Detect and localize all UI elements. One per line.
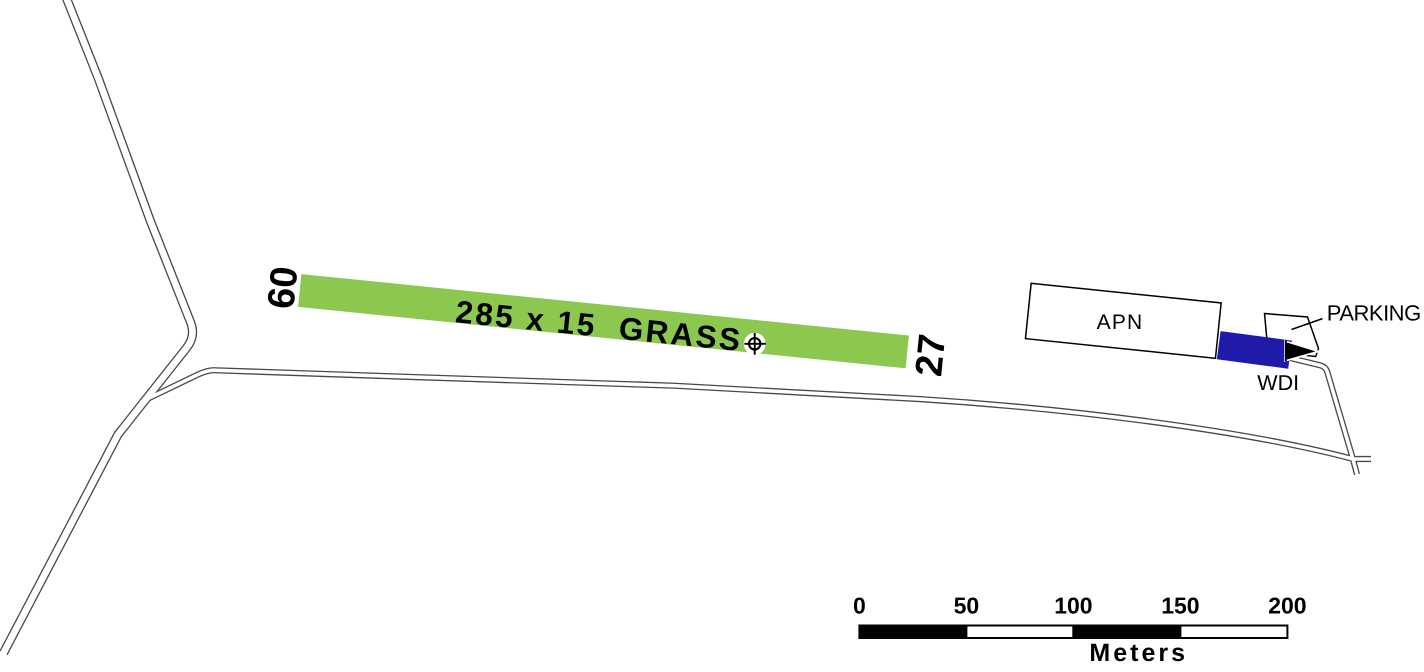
svg-text:WDI: WDI	[1257, 371, 1299, 395]
svg-text:PARKING: PARKING	[1327, 301, 1421, 326]
svg-text:0: 0	[853, 593, 866, 619]
svg-text:27: 27	[908, 332, 954, 378]
svg-text:200: 200	[1268, 593, 1306, 619]
svg-text:Meters: Meters	[1089, 639, 1188, 667]
svg-text:100: 100	[1054, 593, 1092, 619]
svg-text:150: 150	[1161, 593, 1199, 619]
svg-text:60: 60	[260, 265, 306, 311]
svg-text:50: 50	[954, 593, 980, 619]
svg-text:APN: APN	[1097, 311, 1144, 334]
